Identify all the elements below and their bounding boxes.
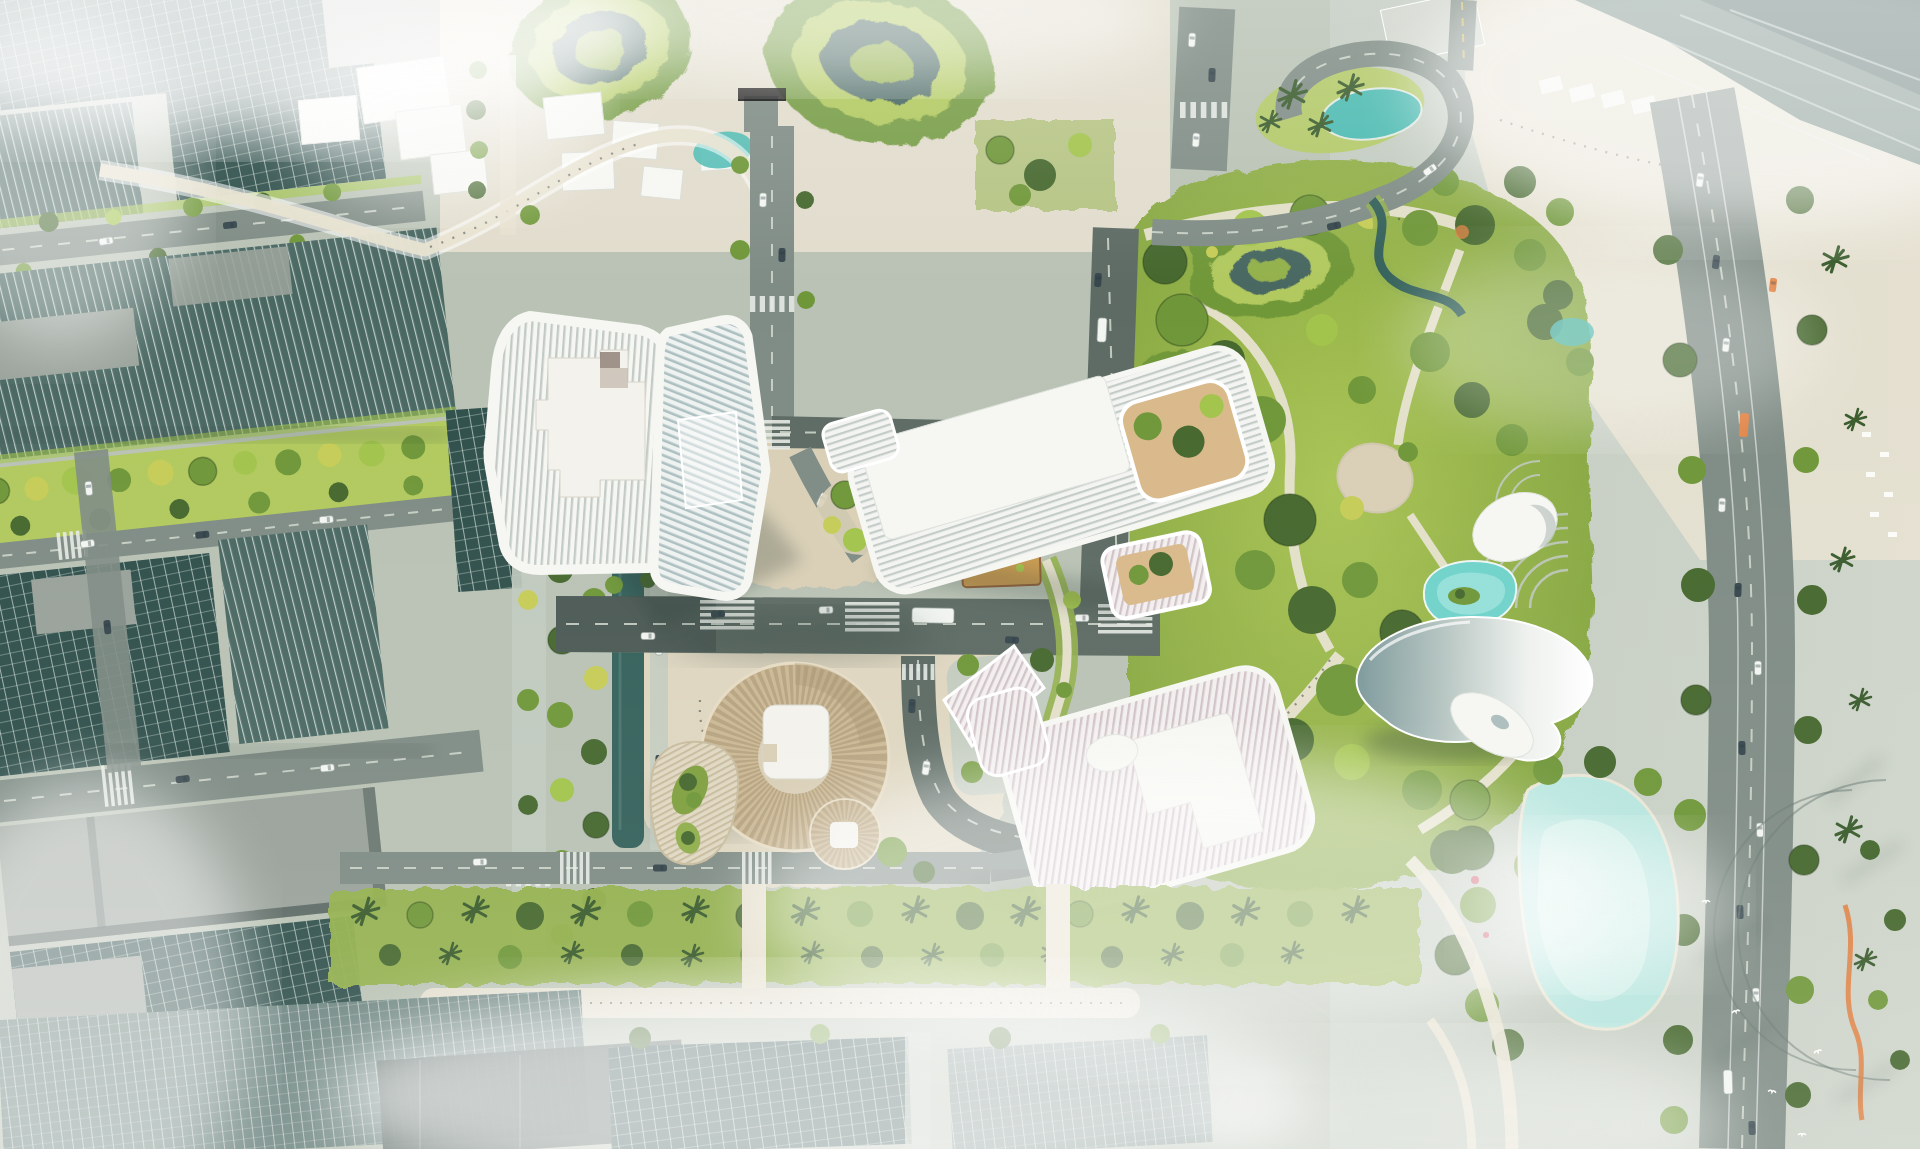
aerial-masterplan-render [0,0,1920,1149]
atmosphere-veil [0,0,1920,1149]
render-canvas [0,0,1920,1149]
